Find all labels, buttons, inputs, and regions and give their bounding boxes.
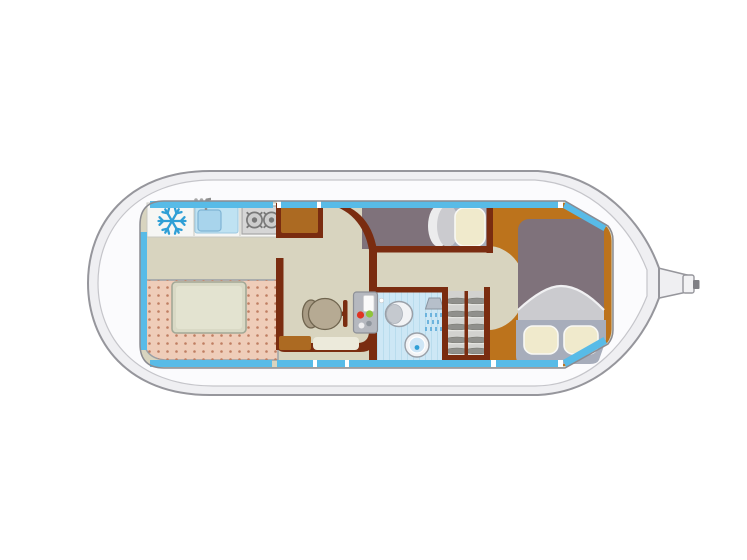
window-gap-b4 xyxy=(558,360,563,367)
bow-fitting-block xyxy=(683,275,694,293)
washbasin xyxy=(405,333,429,357)
basin-bowl xyxy=(409,337,425,353)
floor-plan-canvas xyxy=(0,0,747,560)
panel-screen xyxy=(364,296,375,312)
indicator-red xyxy=(357,311,364,318)
bathroom-wardrobe-wall xyxy=(442,287,448,360)
window-gap-t1 xyxy=(277,201,281,208)
bathroom-left-wall xyxy=(369,330,377,360)
wardrobe-divider xyxy=(465,291,469,357)
window-gap-t3 xyxy=(558,201,563,208)
window-band-bottom-main xyxy=(277,360,563,367)
table-top-sheen xyxy=(176,286,242,329)
aft-berth-pillow xyxy=(455,208,485,246)
window-gap-b3 xyxy=(491,360,496,367)
seat-cushion xyxy=(309,299,342,330)
bow-bed-pillow-left xyxy=(524,326,558,354)
helm-seat xyxy=(303,299,342,330)
saloon-dinette xyxy=(143,280,278,360)
aft-berth-end-wall xyxy=(487,203,494,253)
toilet xyxy=(386,302,413,327)
window-gap-b2 xyxy=(345,360,349,367)
wardrobe-right-wall xyxy=(484,287,490,360)
boat-floor-plan xyxy=(0,0,747,560)
bottom-entry-steps xyxy=(279,336,311,350)
window-band-stern xyxy=(141,232,148,350)
indicator-white xyxy=(359,323,365,329)
bow-cabin xyxy=(516,219,606,364)
corridor-floor xyxy=(375,252,488,290)
bow-fitting-tip xyxy=(693,280,700,289)
bathroom-top-wall xyxy=(375,287,446,293)
window-band-bottom-saloon xyxy=(150,360,272,367)
sink-basin xyxy=(198,210,221,231)
window-band-top-saloon xyxy=(150,201,273,208)
burner-left xyxy=(247,212,263,228)
indicator-green xyxy=(366,310,373,317)
window-gap-t2 xyxy=(317,201,321,208)
window-gap-b1 xyxy=(313,360,317,367)
bathroom xyxy=(375,292,446,360)
basin-drain xyxy=(415,345,420,350)
top-entry-steps xyxy=(281,205,318,233)
aft-berth-wall xyxy=(369,246,493,253)
instrument-panel xyxy=(354,292,378,333)
bathroom-door-knob xyxy=(379,298,384,303)
shower-head xyxy=(426,298,444,309)
aft-berth xyxy=(362,203,490,249)
bottom-step-platform xyxy=(313,337,359,350)
dinette-table xyxy=(172,282,246,333)
indicator-gray xyxy=(366,321,372,327)
